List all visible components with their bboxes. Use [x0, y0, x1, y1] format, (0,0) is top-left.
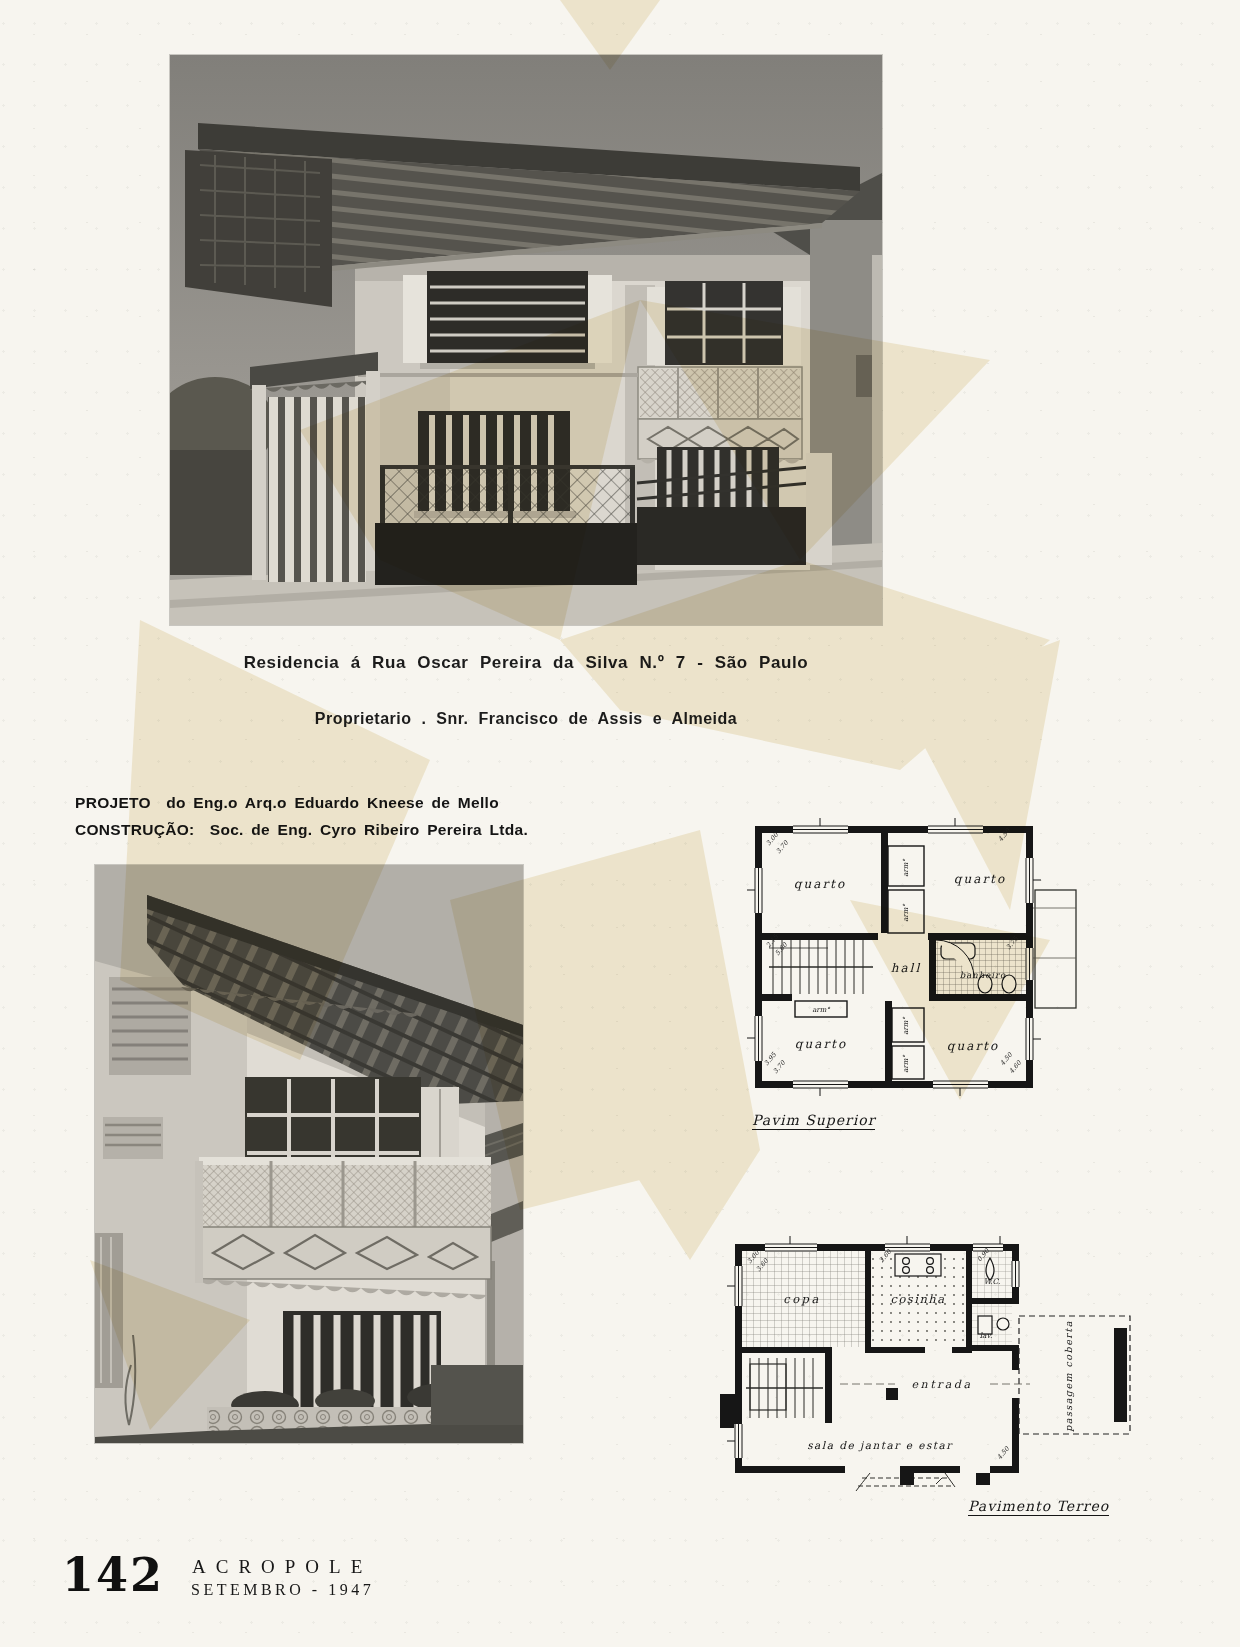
upper-floor-plan: quarto quarto hall banheiro quarto quart…	[733, 798, 1078, 1110]
upstairs-right-window	[647, 281, 801, 365]
label-quarto-bl: quarto	[795, 1037, 847, 1051]
credit-construction: CONSTRUÇÃO: Soc. de Eng. Cyro Ribeiro Pe…	[75, 816, 528, 843]
plan1-dim-lines	[1033, 908, 1076, 958]
ground-floor-plan: copa cosinha W.C. lav. entrada sala de j…	[690, 1166, 1150, 1514]
label-arm-1: arm°	[812, 1006, 830, 1014]
label-hall: hall	[891, 961, 922, 975]
label-sala: sala de jantar e estar	[807, 1439, 953, 1452]
ground-floor-plan-drawing: copa cosinha W.C. lav. entrada sala de j…	[690, 1166, 1150, 1514]
balcony-detail-photo	[95, 865, 523, 1443]
label-arm-5: arm°	[902, 1055, 910, 1073]
page-number: 142	[62, 1548, 164, 1602]
label-entrada: entrada	[912, 1378, 973, 1391]
label-copa: copa	[783, 1292, 821, 1306]
plan2-stairs	[746, 1358, 823, 1418]
plan2-entry-steps	[856, 1473, 990, 1491]
balcony-detail	[195, 1157, 491, 1299]
string-course	[358, 373, 638, 377]
photo-caption-owner: Proprietario . Snr. Francisco de Assis e…	[170, 710, 882, 728]
label-arm-3: arm°	[902, 904, 910, 922]
label-lav: lav.	[980, 1331, 993, 1340]
magazine-page: Residencia á Rua Oscar Pereira da Silva …	[0, 0, 1240, 1647]
credit-project-text: do Eng.o Arq.o Eduardo Kneese de Mello	[166, 794, 499, 811]
facade-photo-illustration	[170, 55, 882, 625]
label-arm-2: arm°	[902, 859, 910, 877]
balcony-photo-illustration	[95, 865, 523, 1443]
label-wc: W.C.	[984, 1277, 1001, 1286]
magazine-title: ACROPOLE	[192, 1556, 372, 1578]
upstairs-left-window	[403, 271, 612, 369]
facade-photo	[170, 55, 882, 625]
label-arm-4: arm°	[902, 1017, 910, 1035]
label-quarto-tr: quarto	[954, 872, 1006, 886]
credit-project-label: PROJETO	[75, 794, 151, 811]
photo-caption-address: Residencia á Rua Oscar Pereira da Silva …	[170, 653, 882, 673]
ground-plan-caption: Pavimento Terreo	[968, 1498, 1109, 1516]
dim: 3.70	[774, 838, 790, 855]
label-quarto-br: quarto	[947, 1039, 999, 1053]
dim: 4.50	[995, 1444, 1011, 1461]
credit-construction-label: CONSTRUÇÃO:	[75, 821, 195, 838]
credits-block: PROJETO do Eng.o Arq.o Eduardo Kneese de…	[75, 789, 528, 843]
upper-floor-plan-drawing: quarto quarto hall banheiro quarto quart…	[733, 798, 1078, 1110]
credit-project: PROJETO do Eng.o Arq.o Eduardo Kneese de…	[75, 789, 528, 816]
label-cosinha: cosinha	[890, 1292, 945, 1306]
label-quarto-tl: quarto	[794, 877, 846, 891]
credit-construction-text: Soc. de Eng. Cyro Ribeiro Pereira Ltda.	[210, 821, 528, 838]
issue-date: SETEMBRO - 1947	[191, 1581, 374, 1599]
label-passagem: passagem coberta	[1063, 1320, 1075, 1433]
label-banheiro: banheiro	[960, 970, 1006, 980]
upper-plan-caption: Pavim Superior	[752, 1112, 875, 1130]
